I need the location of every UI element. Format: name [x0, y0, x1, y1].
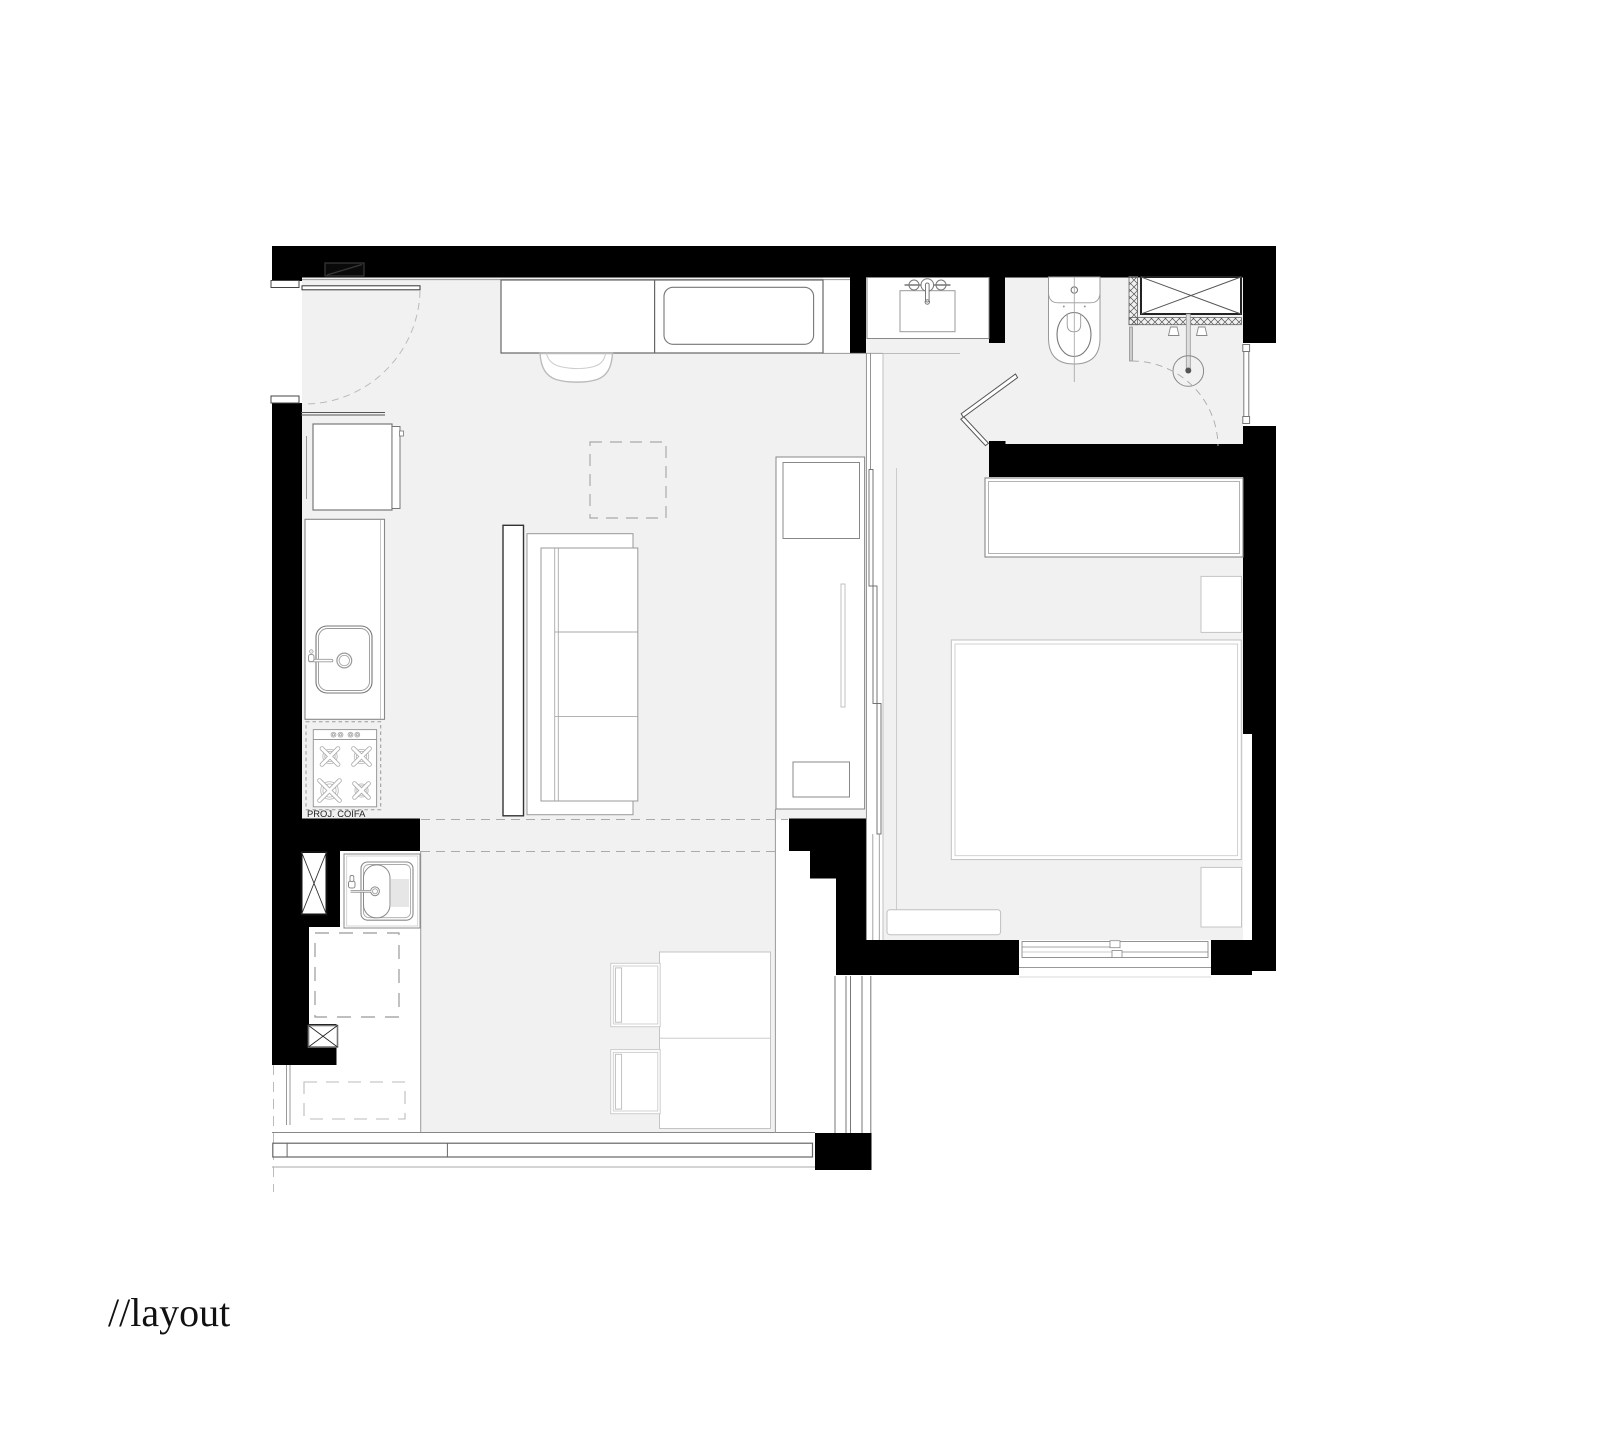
svg-text:PROJ. COIFA: PROJ. COIFA [307, 808, 366, 819]
svg-text://layout: //layout [108, 1290, 230, 1335]
